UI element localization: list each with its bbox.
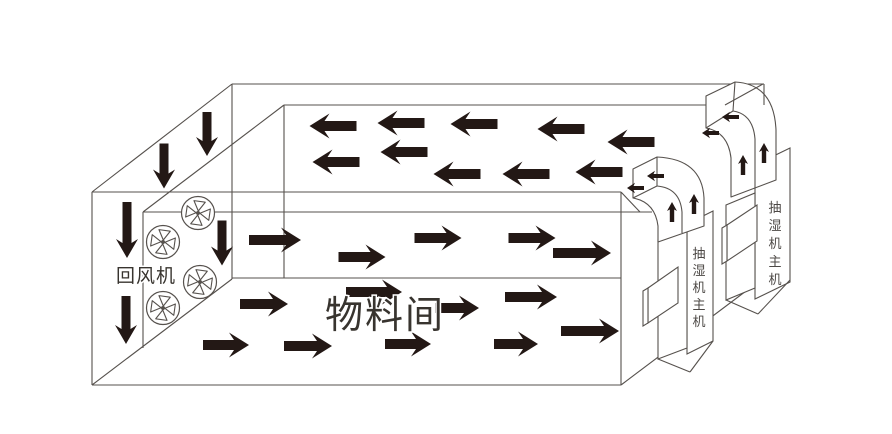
airflow-right-arrow (415, 226, 462, 251)
unit-base-edge (658, 359, 690, 372)
airflow-down-arrow (211, 221, 233, 266)
return-fans (147, 197, 217, 325)
airflow-left-arrow (503, 162, 550, 187)
airflow-right-arrow (553, 241, 611, 266)
duct-elbow (702, 82, 776, 197)
fan-icon (147, 226, 180, 259)
airflow-right-arrow (203, 333, 249, 358)
airflow-right-arrow (249, 228, 301, 253)
airflow-left-arrow (434, 162, 481, 187)
airflow-right-arrow (494, 332, 538, 357)
fan-hub (161, 240, 165, 244)
airflow-right-arrow (284, 334, 332, 359)
fan-icon (184, 266, 217, 299)
airflow-right-arrow (339, 245, 386, 270)
airflow-left-arrow (576, 160, 623, 185)
airflow-down-arrow (153, 144, 175, 189)
airflow-left-arrow (538, 117, 585, 142)
dehumidifier-label: 抽湿机主机 (692, 246, 705, 329)
fan-hub (196, 211, 200, 215)
return-fan-label: 回风机 (116, 265, 176, 287)
material-room-label: 物料间 (325, 295, 445, 337)
airflow-left-arrow (451, 112, 498, 137)
fan-icon (147, 292, 180, 325)
unit-side-box-front (643, 288, 648, 326)
airflow-left-arrow (378, 111, 425, 136)
airflow-left-arrow (310, 114, 357, 139)
diagram-root: 抽湿机主机抽湿机主机 回风机 物料间 (0, 0, 892, 434)
unit-base-edge (726, 300, 758, 314)
airflow-left-arrow (608, 130, 655, 155)
airflow-right-arrow (561, 319, 619, 344)
airflow-right-arrow (240, 292, 288, 317)
airflow-down-arrow (116, 202, 138, 258)
airflow-left-arrow (381, 140, 428, 165)
airflow-left-arrow (313, 150, 360, 175)
fan-hub (161, 306, 165, 310)
unit-side-box-front (722, 225, 727, 264)
fan-hub (198, 280, 202, 284)
airflow-down-arrow (115, 296, 137, 344)
drying-room-airflow-diagram: 抽湿机主机抽湿机主机 回风机 物料间 (0, 0, 892, 434)
airflow-right-arrow (505, 285, 557, 310)
airflow-down-arrow (196, 112, 218, 156)
dehumidifier-label: 抽湿机主机 (768, 200, 781, 287)
duct-elbow (627, 157, 704, 242)
fan-icon (182, 197, 215, 230)
airflow-right-arrow (509, 226, 556, 251)
duct-outline (706, 82, 776, 197)
